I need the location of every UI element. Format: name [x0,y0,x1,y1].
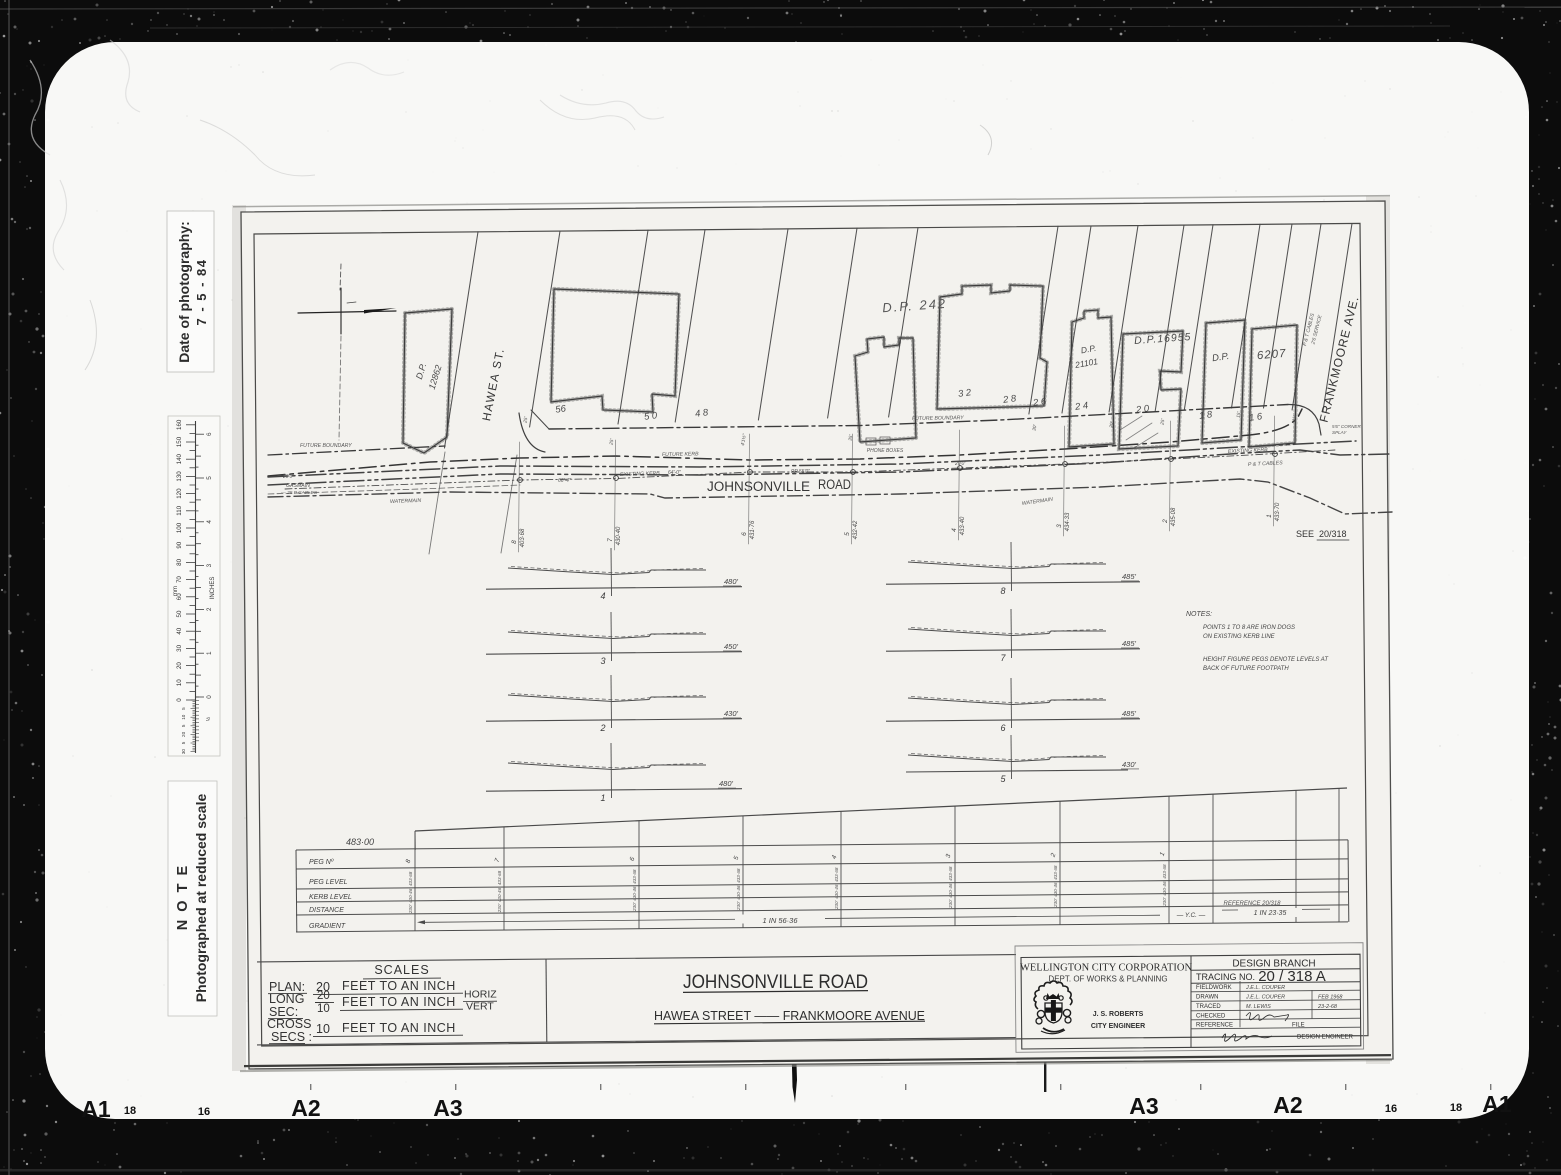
svg-text:434·33: 434·33 [1065,512,1071,531]
svg-text:23-2-68: 23-2-68 [1317,1004,1338,1010]
svg-text:160: 160 [176,419,183,430]
svg-text:433·68: 433·68 [1162,864,1167,879]
svg-text:430·46: 430·46 [1162,881,1167,896]
svg-text:FUTURE KERB: FUTURE KERB [662,451,699,458]
svg-text:ON EXISTING KERB LINE: ON EXISTING KERB LINE [1203,634,1276,640]
svg-text:80: 80 [176,558,183,565]
svg-text:— Y.C. —: — Y.C. — [1176,912,1206,919]
svg-text:A2: A2 [1273,1092,1302,1118]
svg-text:431·76: 431·76 [750,520,756,539]
svg-text:0: 0 [176,698,183,702]
svg-text:PEG Nº: PEG Nº [309,859,334,866]
svg-text:20: 20 [181,731,186,737]
svg-text:4 8: 4 8 [694,407,709,420]
svg-text:485': 485' [1122,572,1137,581]
svg-text:FEET TO AN INCH: FEET TO AN INCH [342,1021,456,1035]
svg-text:mm: mm [173,586,179,596]
svg-text:TRACED: TRACED [1196,1004,1221,1010]
svg-text:FUTURE BOUNDARY: FUTURE BOUNDARY [912,415,964,422]
svg-text:18: 18 [124,1105,136,1117]
svg-text:430': 430' [1122,760,1137,769]
svg-text:KERB LEVEL: KERB LEVEL [309,894,352,901]
svg-text:PEG LEVEL: PEG LEVEL [309,879,348,886]
svg-text:150: 150 [176,436,183,447]
svg-text:10: 10 [316,1022,330,1036]
svg-text:230': 230' [834,900,839,910]
svg-text:6: 6 [1000,723,1005,733]
svg-text:1 6: 1 6 [1248,411,1263,424]
svg-text:WATERMAIN: WATERMAIN [390,498,422,505]
svg-text:GASMAIN: GASMAIN [286,483,310,489]
svg-text:433·40: 433·40 [960,516,966,535]
svg-text:A2: A2 [291,1095,320,1121]
svg-text:FEET TO AN INCH: FEET TO AN INCH [342,979,456,993]
svg-text:18: 18 [1450,1102,1462,1114]
svg-text:450': 450' [724,642,739,651]
svg-text:485': 485' [1122,709,1137,718]
svg-text:435·08: 435·08 [1171,507,1177,526]
svg-text:120: 120 [176,488,183,499]
svg-text:SECS :: SECS : [271,1030,312,1044]
svg-text:110: 110 [176,505,183,515]
svg-text:7 - 5 - 84: 7 - 5 - 84 [194,258,209,325]
svg-text:433·68: 433·68 [408,871,413,886]
svg-text:40: 40 [176,627,183,634]
svg-text:433·68: 433·68 [948,866,953,881]
svg-text:20'0": 20'0" [954,461,966,467]
svg-text:1: 1 [206,651,213,655]
svg-text:REFERENCE: REFERENCE [1196,1023,1233,1029]
svg-text:5: 5 [206,476,213,480]
svg-text:3: 3 [600,656,605,666]
svg-text:PP 55'0": PP 55'0" [791,469,810,475]
svg-text:2 6: 2 6 [1031,396,1047,409]
svg-text:5: 5 [181,741,186,744]
svg-text:Date of photography:: Date of photography: [176,221,192,363]
svg-text:A3: A3 [1129,1093,1158,1119]
svg-text:HAWEA STREET —— FRANKMOORE A: HAWEA STREET —— FRANKMOORE AVENUE [654,1009,925,1023]
svg-text:1 8: 1 8 [1198,409,1213,422]
svg-text:INCHES: INCHES [210,577,216,600]
svg-text:CROSS: CROSS [267,1017,311,1031]
svg-text:2: 2 [206,607,213,611]
svg-text:N O T E: N O T E [175,864,191,930]
svg-text:432·42: 432·42 [853,520,859,539]
svg-text:Photographed at reduced scale: Photographed at reduced scale [193,794,209,1003]
svg-text:10: 10 [176,679,183,686]
svg-text:433·68: 433·68 [1053,865,1058,880]
svg-text:66'-4": 66'-4" [558,478,571,484]
svg-text:2 0: 2 0 [1134,403,1150,416]
svg-text:433·68: 433·68 [632,869,637,884]
svg-text:430·46: 430·46 [834,884,839,899]
svg-text:2: 2 [599,723,605,733]
svg-text:16: 16 [198,1106,210,1118]
svg-text:A1: A1 [81,1096,111,1122]
svg-text:230': 230' [1162,897,1167,907]
svg-text:10: 10 [317,1003,330,1015]
svg-text:FUTURE BOUNDARY: FUTURE BOUNDARY [300,443,352,449]
svg-text:430·46: 430·46 [497,887,502,902]
svg-text:1: 1 [600,793,605,803]
svg-text:NOTES:: NOTES: [1186,611,1212,618]
svg-text:20/318: 20/318 [1319,529,1347,539]
svg-text:M. LEWIS: M. LEWIS [1246,1004,1271,1010]
svg-text:433·68: 433·68 [736,868,741,883]
svg-text:433·70: 433·70 [1275,502,1281,521]
svg-text:140: 140 [176,453,183,464]
svg-text:100: 100 [176,522,183,533]
svg-text:433·68: 433·68 [834,867,839,882]
svg-text:4: 4 [600,591,605,601]
svg-text:DRAWN: DRAWN [1196,995,1218,1001]
svg-text:8: 8 [1000,586,1005,596]
svg-text:10: 10 [181,714,186,720]
svg-text:3 2: 3 2 [957,387,972,400]
svg-text:PHONE BOXES: PHONE BOXES [867,448,904,454]
svg-text:FEET TO AN INCH: FEET TO AN INCH [342,995,456,1009]
svg-text:30: 30 [176,644,183,651]
svg-text:5 0: 5 0 [643,410,658,423]
svg-text:20: 20 [176,662,183,669]
svg-text:20'0": 20'0" [282,474,294,480]
svg-text:HEIGHT FIGURE PEGS DENOTE: HEIGHT FIGURE PEGS DENOTE LEVELS AT [1203,657,1329,663]
svg-text:DISTANCE: DISTANCE [309,907,344,914]
svg-text:0: 0 [206,695,213,699]
svg-text:A3: A3 [433,1095,462,1121]
svg-text:JOHNSONVILLE ROAD: JOHNSONVILLE ROAD [683,972,868,993]
svg-text:30: 30 [181,749,186,755]
svg-text:SEE: SEE [1296,529,1314,539]
svg-text:HORIZ: HORIZ [464,988,497,1000]
svg-text:130: 130 [176,471,183,482]
svg-text:430·46: 430·46 [408,888,413,903]
svg-text:6: 6 [206,432,213,436]
svg-text:3: 3 [206,563,213,567]
svg-text:FILE: FILE [1292,1023,1305,1029]
svg-text:SCALES: SCALES [374,963,429,977]
svg-text:5: 5 [181,707,186,710]
svg-text:ROAD: ROAD [818,477,851,492]
svg-text:DESIGN ENGINEER: DESIGN ENGINEER [1297,1035,1354,1041]
svg-text:480': 480' [719,779,734,788]
svg-text:GRADIENT: GRADIENT [309,923,346,930]
svg-text:1 IN 56·36: 1 IN 56·36 [762,916,798,925]
svg-text:430': 430' [724,709,739,718]
svg-text:SPLAY: SPLAY [1332,430,1347,435]
svg-text:430·46: 430·46 [736,885,741,900]
svg-text:J.E.L. COUPER: J.E.L. COUPER [1245,985,1285,991]
svg-text:430·46: 430·46 [632,886,637,901]
svg-text:403·68: 403·68 [520,528,526,547]
svg-text:70: 70 [176,576,183,583]
svg-text:483·00: 483·00 [346,837,374,847]
svg-text:1 IN 23·35: 1 IN 23·35 [1254,910,1287,917]
svg-text:FEB 1968: FEB 1968 [1318,995,1343,1001]
svg-text:BACK OF FUTURE FOOTPATH: BACK OF FUTURE FOOTPATH [1203,666,1289,672]
svg-text:230': 230' [497,904,502,914]
svg-text:JOHNSONVILLE: JOHNSONVILLE [707,479,810,494]
svg-text:230': 230' [408,904,413,914]
svg-text:2: 2 [1162,519,1169,524]
svg-text:430·40: 430·40 [616,526,622,545]
svg-text:5: 5 [181,724,186,727]
svg-text:6207: 6207 [1256,348,1287,363]
svg-text:CHECKED: CHECKED [1196,1014,1226,1020]
svg-text:90: 90 [176,541,183,548]
svg-text:2 8: 2 8 [1001,393,1017,406]
svg-text:POINTS 1 TO 8 ARE IRON D: POINTS 1 TO 8 ARE IRON DOGS [1203,625,1295,631]
svg-text:J. S. ROBERTS: J. S. ROBERTS [1093,1011,1144,1018]
svg-text:64'-0": 64'-0" [668,470,681,476]
svg-text:485': 485' [1122,639,1137,648]
svg-text:230': 230' [632,902,637,912]
svg-text:2 4: 2 4 [1073,400,1089,413]
svg-text:TRACING NO.: TRACING NO. [1196,972,1255,982]
svg-text:WELLINGTON CITY CORPORATION: WELLINGTON CITY CORPORATION [1020,963,1192,974]
svg-text:433·68: 433·68 [497,870,502,885]
svg-text:5'6" CORNER: 5'6" CORNER [1332,424,1361,429]
svg-text:430·46: 430·46 [1053,882,1058,897]
svg-text:J.E.L. COUPER: J.E.L. COUPER [1245,995,1285,1001]
svg-text:REFERENCE 20/318: REFERENCE 20/318 [1223,901,1281,907]
svg-text:230': 230' [736,901,741,911]
svg-text:16: 16 [1385,1103,1397,1115]
svg-text:430·46: 430·46 [948,883,953,898]
svg-text:CITY ENGINEER: CITY ENGINEER [1091,1023,1145,1030]
svg-text:50: 50 [176,610,183,617]
svg-text:A1: A1 [1482,1091,1512,1117]
svg-text:FIELDWORK: FIELDWORK [1196,985,1232,991]
svg-text:480': 480' [724,577,739,586]
svg-text:LONG: LONG [269,992,304,1006]
svg-text:230': 230' [1053,898,1058,908]
svg-text:230': 230' [948,899,953,909]
svg-text:4: 4 [206,520,213,524]
svg-text:DEPT. OF WORKS & PLANNING: DEPT. OF WORKS & PLANNING [1048,975,1167,984]
svg-text:— 25 P CABLES: — 25 P CABLES [280,490,318,496]
svg-text:VERT: VERT [466,1000,494,1012]
svg-text:20: 20 [317,990,330,1002]
